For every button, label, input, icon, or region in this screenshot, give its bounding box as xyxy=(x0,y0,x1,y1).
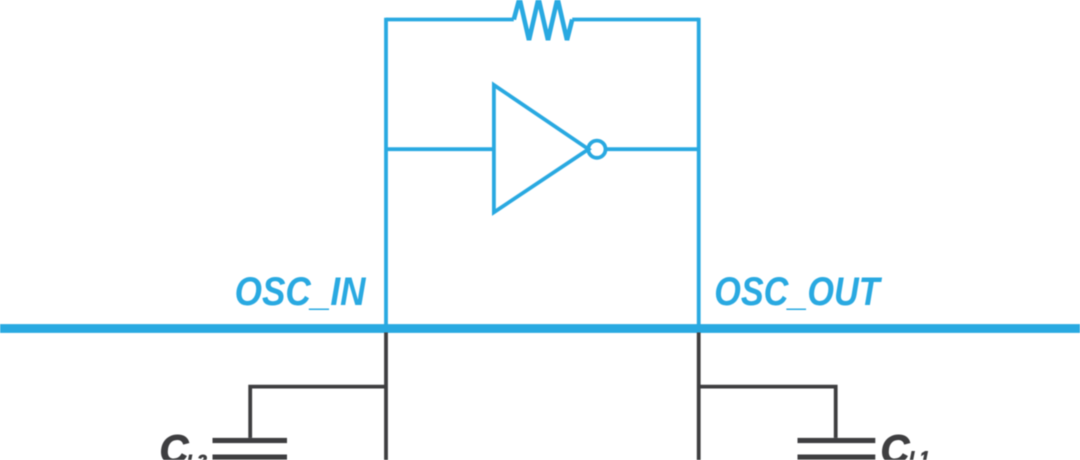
svg-text:OSC_OUT: OSC_OUT xyxy=(714,270,883,314)
svg-text:OSC_IN: OSC_IN xyxy=(235,270,367,314)
